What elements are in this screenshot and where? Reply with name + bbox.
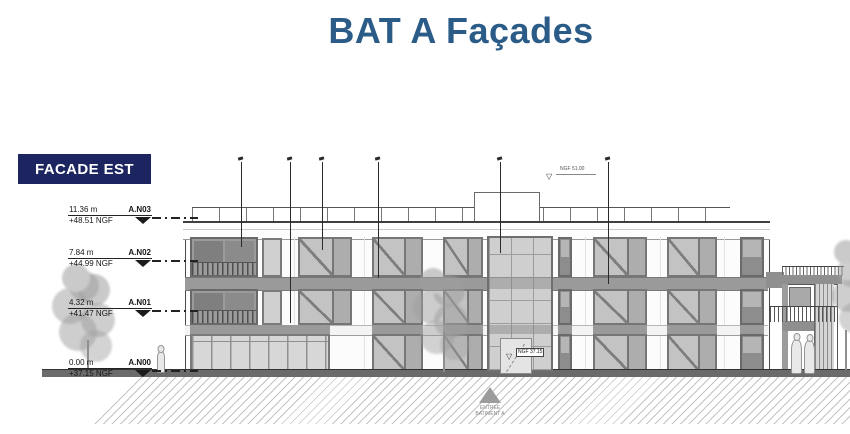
ground-header-band: [740, 325, 764, 334]
level-marker-an03: 11.36 m A.N03 +48.51 NGF: [68, 205, 198, 226]
level-height: 0.00 m: [69, 358, 93, 368]
annex-slat-panel: [814, 284, 834, 372]
leader-line: [290, 162, 291, 323]
level-name: A.N00: [128, 358, 151, 368]
annex-balcony-railing: [770, 306, 838, 322]
annex-window: [789, 287, 811, 307]
tree-trunk: [845, 330, 847, 370]
level-row: +48.51 NGF: [68, 216, 152, 226]
ground-header-band: [190, 325, 330, 334]
survey-marker-icon: ▽: [546, 173, 552, 181]
level-ngf: +44.99 NGF: [69, 259, 113, 269]
facade-joint: [585, 237, 586, 372]
entrance-marker-icon: [479, 387, 501, 403]
callout-number-mark: [375, 156, 380, 160]
annex-fascia: [778, 275, 842, 284]
narrow-window: [558, 237, 572, 277]
narrow-window: [740, 334, 764, 372]
narrow-window: [740, 237, 764, 277]
roof-ngf-label: NGF 51.00: [560, 166, 584, 172]
level-triangle-icon: [135, 370, 151, 377]
leader-line: [378, 162, 379, 278]
level-height: 4.32 m: [69, 298, 93, 308]
callout-number-mark: [319, 156, 324, 160]
window-bay: [298, 237, 352, 277]
narrow-window: [740, 289, 764, 325]
facade-joint: [364, 237, 365, 372]
page-title: BAT A Façades: [36, 10, 850, 52]
window-bay: [443, 289, 483, 325]
roof-railing: [192, 207, 730, 222]
level-ngf: +48.51 NGF: [69, 216, 113, 226]
level-extension-line: [152, 310, 198, 312]
level-triangle-icon: [135, 260, 151, 267]
level-row: 7.84 m A.N02: [68, 248, 152, 259]
roof-parapet-line: [183, 229, 770, 230]
window-bay: [372, 334, 423, 372]
survey-marker-icon: ▽: [506, 353, 512, 361]
level-height: 11.36 m: [69, 205, 97, 215]
leader-line: [322, 162, 323, 250]
level-row: 0.00 m A.N00: [68, 358, 152, 369]
callout-number-mark: [605, 156, 610, 160]
ground-header-band: [558, 325, 572, 334]
level-name: A.N03: [128, 205, 151, 215]
person-figure: [804, 340, 815, 374]
window-bay: [443, 334, 483, 372]
window-bay: [593, 237, 647, 277]
level-ngf: +41.47 NGF: [69, 309, 113, 319]
roof-ngf-leader: [556, 174, 596, 175]
tree-foliage: [420, 268, 446, 294]
storefront-glazing: [190, 334, 330, 372]
window-bay: [372, 237, 423, 277]
narrow-window: [558, 289, 572, 325]
window-bay: [593, 334, 647, 372]
door-panel: [262, 238, 282, 277]
level-marker-an00: 0.00 m A.N00 +37.15 NGF: [68, 358, 198, 379]
tree-trunk: [443, 332, 445, 372]
level-name: A.N01: [128, 298, 151, 308]
facade-est-label: FACADE EST: [18, 154, 151, 184]
leader-line: [241, 162, 242, 247]
level-row: +37.15 NGF: [68, 369, 152, 379]
rooftop-structure: [474, 192, 540, 223]
ground-hatch: [42, 376, 850, 424]
window-bay: [667, 237, 717, 277]
window-bay: [443, 237, 483, 277]
level-row: +44.99 NGF: [68, 259, 152, 269]
ground-header-band: [443, 325, 483, 334]
level-row: 11.36 m A.N03: [68, 205, 152, 216]
level-extension-line: [152, 217, 198, 219]
level-marker-an01: 4.32 m A.N01 +41.47 NGF: [68, 298, 198, 319]
door-panel: [262, 290, 282, 325]
level-row: +41.47 NGF: [68, 309, 152, 319]
leader-line: [500, 162, 501, 253]
ground-header-band: [667, 325, 717, 334]
curtain-spandrel: [489, 325, 551, 334]
window-bay: [667, 289, 717, 325]
window-bay: [593, 289, 647, 325]
level-extension-line: [152, 260, 198, 262]
level-marker-an02: 7.84 m A.N02 +44.99 NGF: [68, 248, 198, 269]
level-ngf: +37.15 NGF: [69, 369, 113, 379]
slide-canvas: BAT A Façades FACADE EST 11.36 m A.N03 +…: [0, 0, 850, 434]
window-bay: [372, 289, 423, 325]
balcony-bay: [190, 237, 258, 277]
annex-spandrel: [782, 321, 814, 331]
callout-number-mark: [497, 156, 502, 160]
facade-joint: [660, 237, 661, 372]
level-name: A.N02: [128, 248, 151, 258]
entrance-label: ENTREE BATIMENT A: [460, 405, 520, 417]
callout-number-mark: [287, 156, 292, 160]
leader-line: [608, 162, 609, 284]
ground-header-band: [593, 325, 647, 334]
curtain-spandrel: [489, 277, 551, 289]
level-triangle-icon: [135, 310, 151, 317]
level-height: 7.84 m: [69, 248, 93, 258]
window-bay: [298, 289, 352, 325]
callout-number-mark: [238, 156, 243, 160]
narrow-window: [558, 334, 572, 372]
entrance-ngf-label: NGF 37.15: [516, 348, 544, 357]
level-triangle-icon: [135, 217, 151, 224]
tree-foliage: [834, 240, 850, 264]
window-bay: [667, 334, 717, 372]
facade-joint: [724, 237, 725, 372]
ground-header-band: [372, 325, 423, 334]
person-figure: [791, 339, 802, 374]
level-row: 4.32 m A.N01: [68, 298, 152, 309]
balcony-bay: [190, 289, 258, 325]
entrance-label-line2: BATIMENT A: [460, 411, 520, 417]
level-extension-line: [152, 370, 198, 372]
